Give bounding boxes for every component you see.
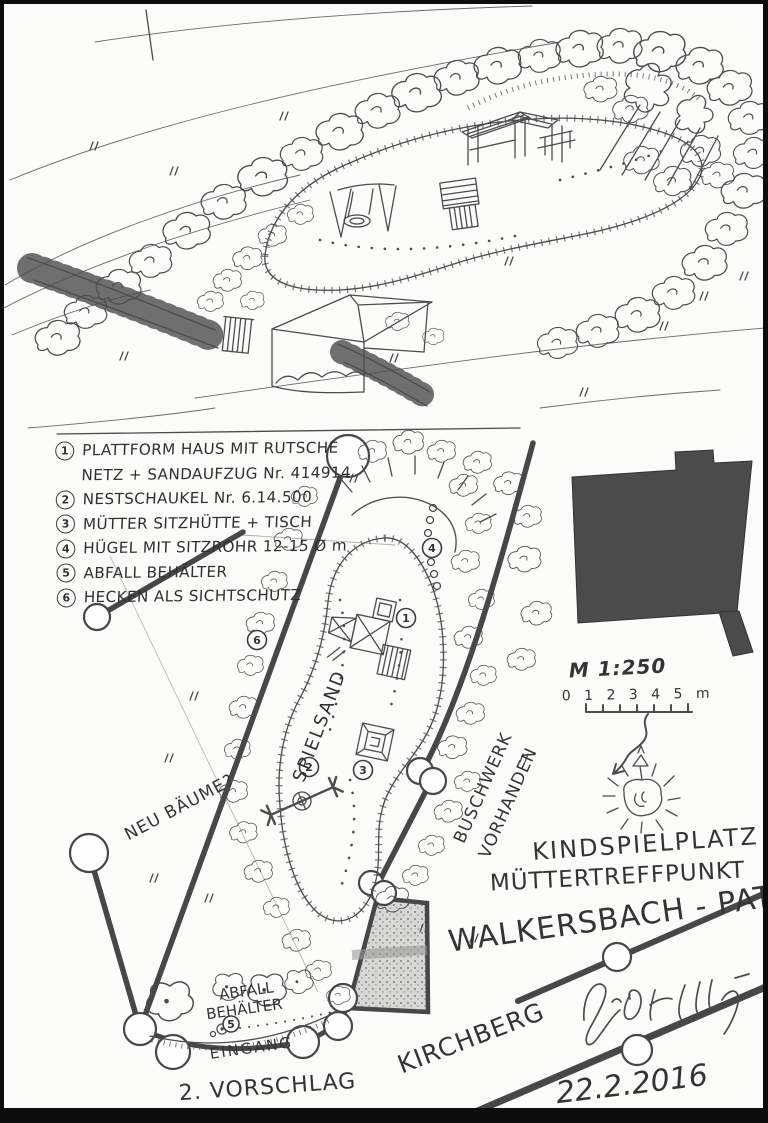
legend-label: HÜGEL MIT SITZROHR 12-15 Ø m [83,537,347,558]
existing-building [572,450,753,656]
legend-row: 6 HECKEN ALS SICHTSCHUTZ [57,582,357,610]
marker-6: 6 [253,634,261,647]
legend: 1 PLATTFORM HAUS MIT RUTSCHE NETZ + SAND… [55,435,357,610]
nest-swing-sketch [330,184,396,237]
hill-sketch [468,74,718,190]
signature: Günt Bettig [584,974,749,1045]
legend-label: ABFALL BEHÄLTER [83,563,228,583]
marker-3: 3 [359,764,367,777]
legend-label: HECKEN ALS SICHTSCHUTZ [83,586,301,606]
legend-number: 2 [56,490,75,509]
legend-label: PLATTFORM HAUS MIT RUTSCHE [82,439,339,460]
legend-row: 4 HÜGEL MIT SITZROHR 12-15 Ø m [56,533,356,561]
sitting-hut-sketch [440,178,482,231]
north-arrow: N [613,714,648,774]
title-block: KINDSPIELPLATZ MÜTTERTREFFPUNKT WALKERSB… [178,822,768,1111]
legend-number: 1 [55,441,74,460]
legend-row: NETZ + SANDAUFZUG Nr. 414914 [55,460,355,488]
entrance-label: EINGANG [209,1033,295,1062]
sun-symbol [603,746,680,833]
scale-ratio: M 1:250 [568,653,667,682]
scale-indicator: M 1:250 0 1 2 3 4 5 m [562,653,715,712]
sand-label: SPIELSAND [289,667,351,785]
marker-4: 4 [428,542,436,555]
marker-1: 1 [402,612,410,625]
legend-label: MÜTTER SITZHÜTTE + TISCH [83,513,313,533]
sitting-hut-symbol [356,723,394,761]
legend-number: 4 [56,539,75,558]
legend-row: 3 MÜTTER SITZHÜTTE + TISCH [56,509,356,537]
legend-row: 5 ABFALL BEHÄLTER [56,558,356,586]
grass-ticks [90,112,748,396]
legend-number: 6 [57,588,76,607]
legend-row: 2 NESTSCHAUKEL Nr. 6.14.500 [56,484,356,512]
legend-label: NESTSCHAUKEL Nr. 6.14.500 [82,488,312,508]
scanned-plan-page: M 1:250 0 1 2 3 4 5 m N 1 2 3 4 5 6 SPIE… [0,0,768,1123]
perspective-sketch [0,6,768,428]
sand-area-sketch [265,118,702,290]
divider-line [57,428,520,434]
legend-label: NETZ + SANDAUFZUG Nr. 414914 [81,463,351,484]
paved-area [348,898,428,1012]
scale-tick-labels: 0 1 2 3 4 5 m [562,686,715,705]
waste-bin-sketch [220,317,253,354]
legend-number: 3 [56,515,75,534]
legend-number: 5 [56,564,75,583]
legend-row: 1 PLATTFORM HAUS MIT RUTSCHE [55,435,355,463]
proposal-label: 2. VORSCHLAG [178,1069,357,1106]
play-structure-sketch [462,112,575,165]
